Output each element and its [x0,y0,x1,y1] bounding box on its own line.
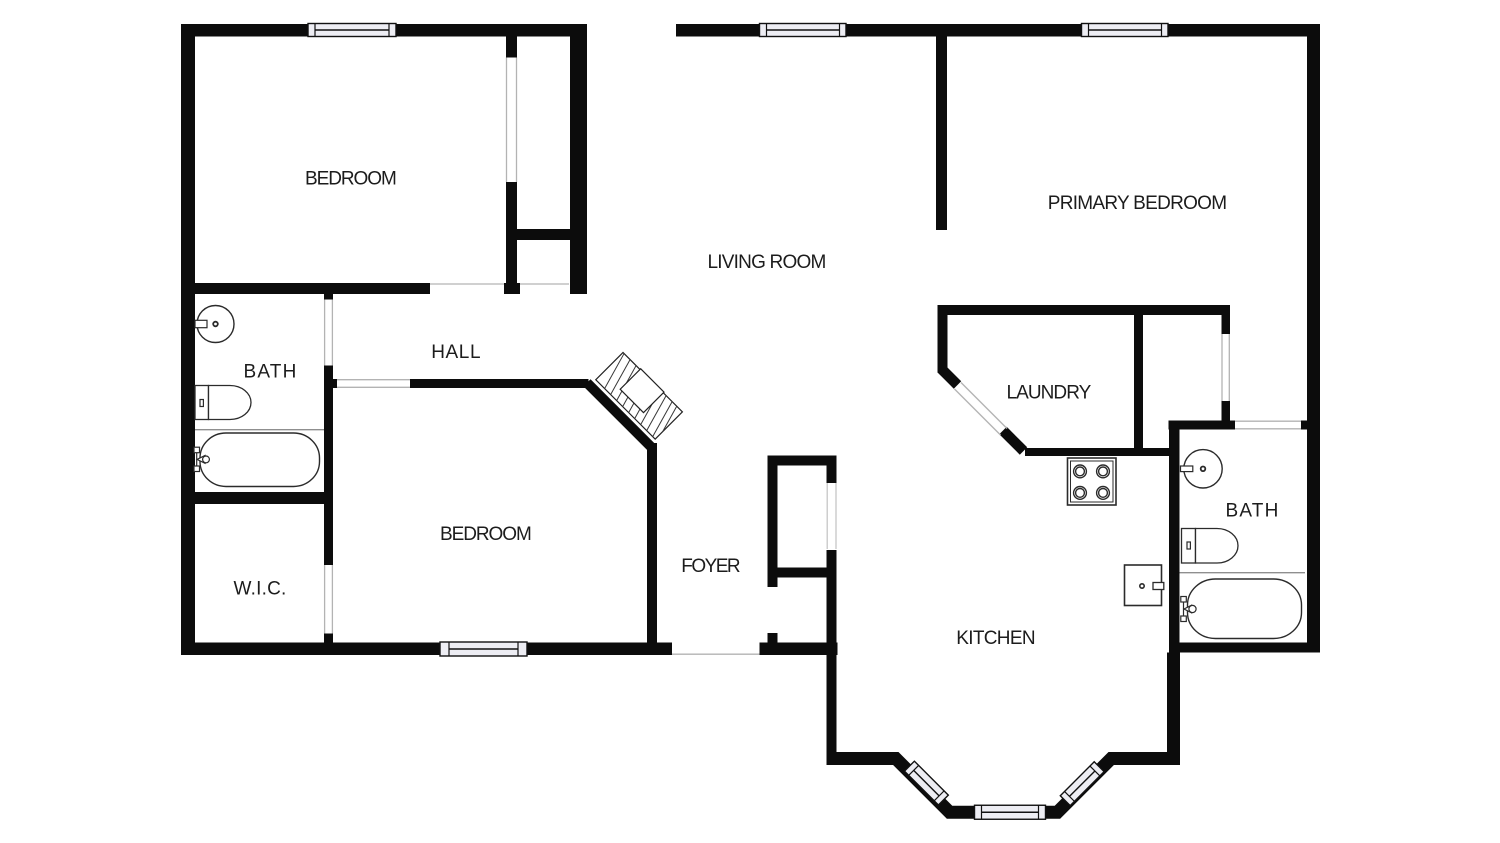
svg-text:LIVING ROOM: LIVING ROOM [708,252,827,273]
svg-text:W.I.C.: W.I.C. [234,579,287,600]
svg-text:BATH: BATH [244,362,297,383]
svg-text:BEDROOM: BEDROOM [440,524,532,545]
svg-text:LAUNDRY: LAUNDRY [1007,383,1092,404]
svg-text:KITCHEN: KITCHEN [956,628,1036,649]
svg-text:FOYER: FOYER [681,556,741,577]
svg-text:BEDROOM: BEDROOM [305,169,397,190]
svg-text:BATH: BATH [1226,501,1279,522]
svg-text:PRIMARY BEDROOM: PRIMARY BEDROOM [1048,193,1228,214]
svg-text:HALL: HALL [431,342,481,363]
